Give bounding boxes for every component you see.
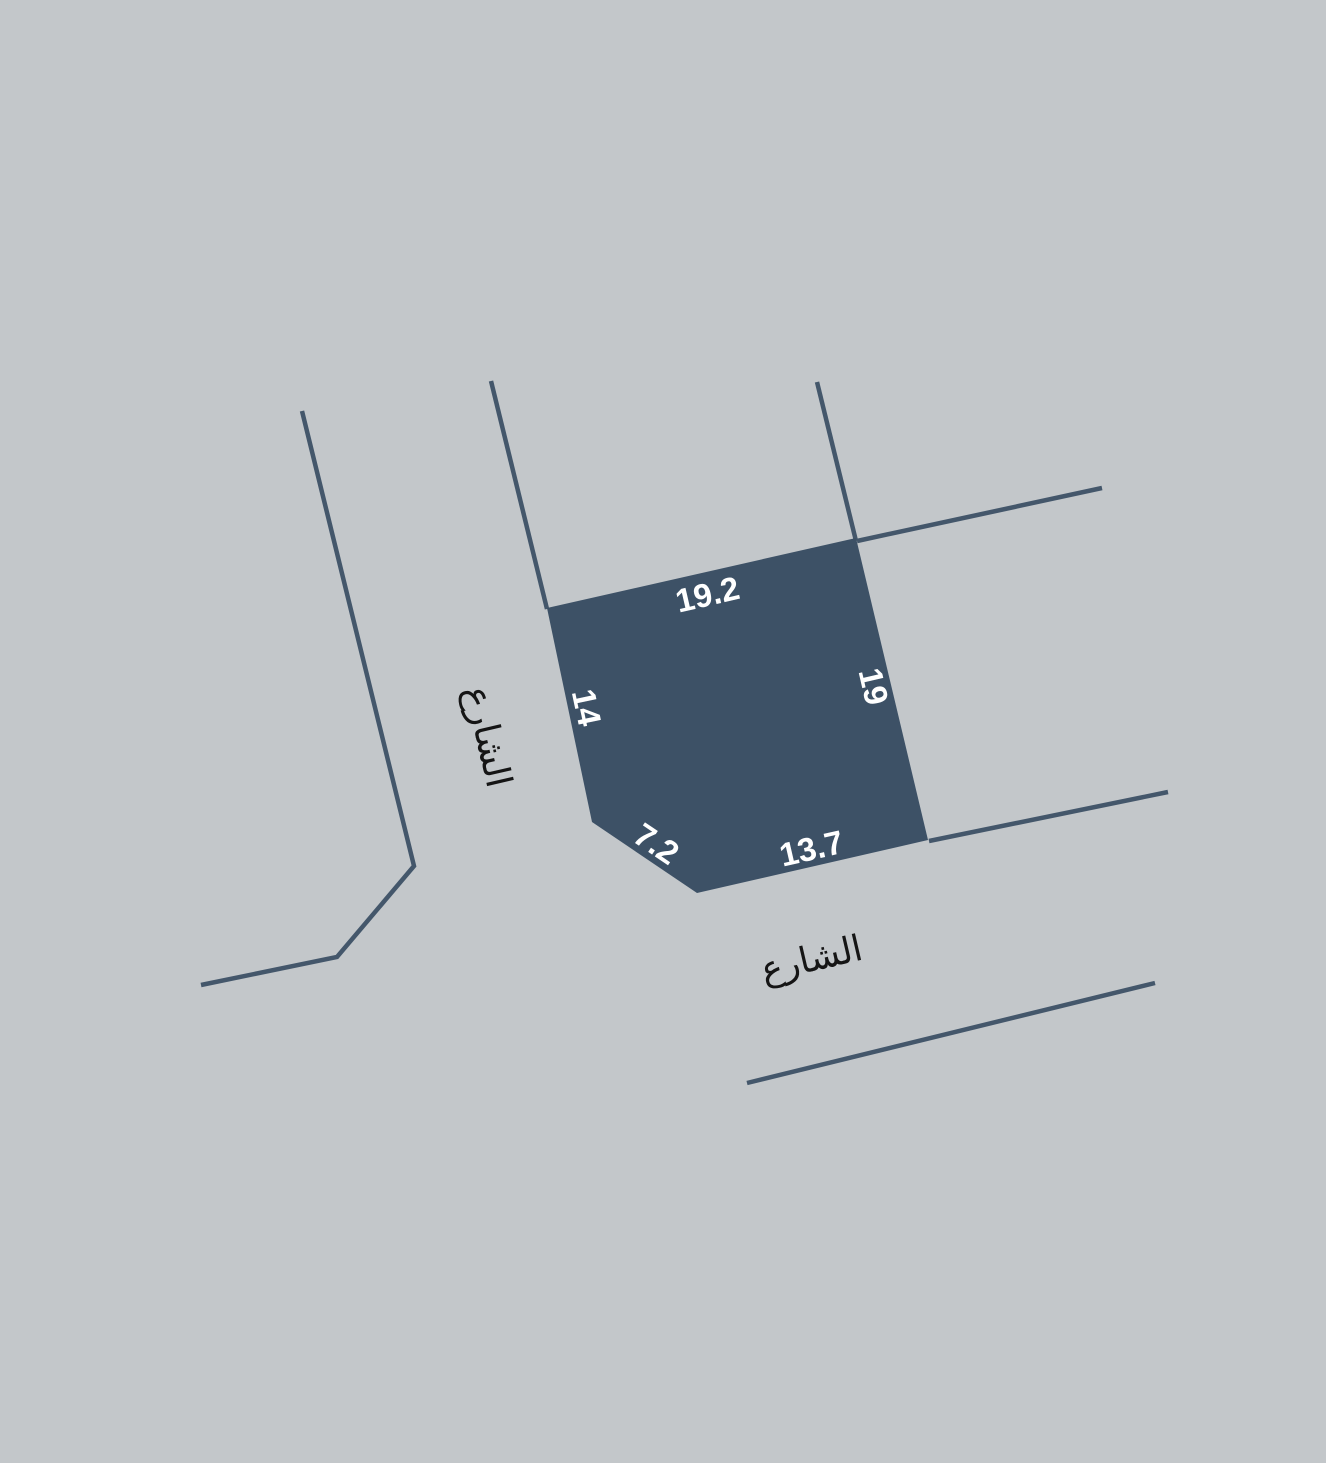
cadastral-map: 19.2 19 14 7.2 13.7 الشارع الشارع: [0, 0, 1326, 1463]
